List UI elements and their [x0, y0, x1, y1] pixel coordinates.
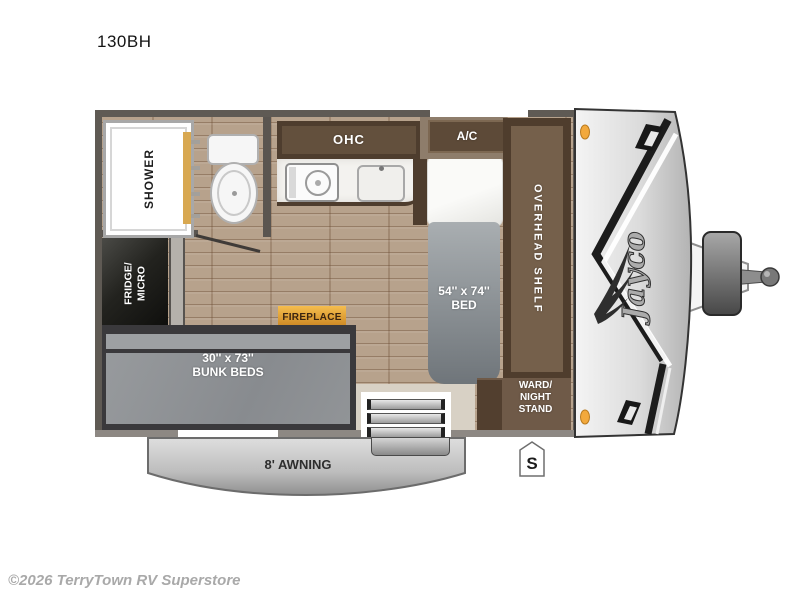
step-tread — [367, 413, 445, 424]
s-marker-badge: S — [518, 440, 546, 478]
floorplan: SHOWER FRIDGE/ MICRO OHC 54'' x 74'' — [95, 110, 580, 437]
bathroom-divider-wall — [263, 110, 271, 237]
overhead-shelf-label: OVERHEAD SHELF — [530, 184, 543, 313]
wall-left — [95, 110, 102, 437]
fireplace-label: FIREPLACE — [282, 312, 341, 323]
cooktop — [285, 163, 339, 202]
dealer-watermark: ©2026 TerryTown RV Superstore — [8, 572, 241, 589]
propane-tank-cover — [703, 232, 741, 315]
shower-label: SHOWER — [142, 149, 156, 209]
coupler-highlight — [764, 271, 770, 277]
overhead-cabinet: OHC — [277, 121, 421, 159]
coupler-knob — [761, 268, 779, 286]
ac-label: A/C — [457, 129, 478, 143]
ac-unit: A/C — [428, 120, 506, 153]
shower-door-roller — [191, 166, 200, 170]
shower-door-track — [183, 132, 191, 224]
marker-light-bottom — [581, 410, 590, 424]
bunk-beds: 30'' x 73'' BUNK BEDS — [100, 325, 356, 430]
burner-center — [315, 180, 321, 186]
shower-door-roller — [191, 192, 200, 196]
s-badge-letter: S — [526, 454, 537, 473]
window-top — [430, 110, 528, 117]
overhead-shelf: OVERHEAD SHELF — [503, 118, 571, 380]
jayco-logo-text: Jayco — [617, 231, 652, 325]
shower-door-roller — [191, 140, 200, 144]
cooktop-controls — [289, 167, 296, 198]
toilet-drain — [232, 191, 237, 196]
fridge-micro: FRIDGE/ MICRO — [102, 238, 168, 330]
bunk-beds-label: 30'' x 73'' BUNK BEDS — [100, 351, 356, 380]
bed-pillow — [427, 155, 503, 227]
toilet-tank — [207, 134, 259, 165]
bottom-step — [371, 437, 450, 456]
awning-label: 8' AWNING — [265, 457, 332, 472]
shower-door-roller — [191, 214, 200, 218]
fridge-micro-label: FRIDGE/ MICRO — [122, 263, 147, 306]
ward-night-stand-label: WARD/ NIGHT STAND — [500, 380, 571, 416]
ward-cabinet — [477, 380, 502, 430]
marker-light-top — [581, 125, 590, 139]
faucet — [379, 166, 384, 171]
fridge-side-panel — [169, 238, 185, 330]
window-bottom — [178, 430, 278, 437]
bed-headboard-panel — [413, 155, 427, 225]
toilet — [210, 162, 258, 224]
step-tread — [367, 399, 445, 410]
trailer-front-cap: Jayco — [570, 102, 782, 444]
bed-label: 54'' x 74'' BED — [428, 284, 500, 313]
shower: SHOWER — [103, 120, 194, 238]
entry-steps — [361, 392, 451, 437]
burner — [305, 170, 331, 196]
ohc-label: OHC — [333, 132, 365, 148]
bunk-bolster — [106, 334, 350, 349]
bed: 54'' x 74'' BED — [428, 222, 500, 384]
kitchen-sink — [357, 165, 405, 202]
page-title: 130BH — [97, 32, 151, 52]
wall-bottom — [95, 430, 580, 437]
